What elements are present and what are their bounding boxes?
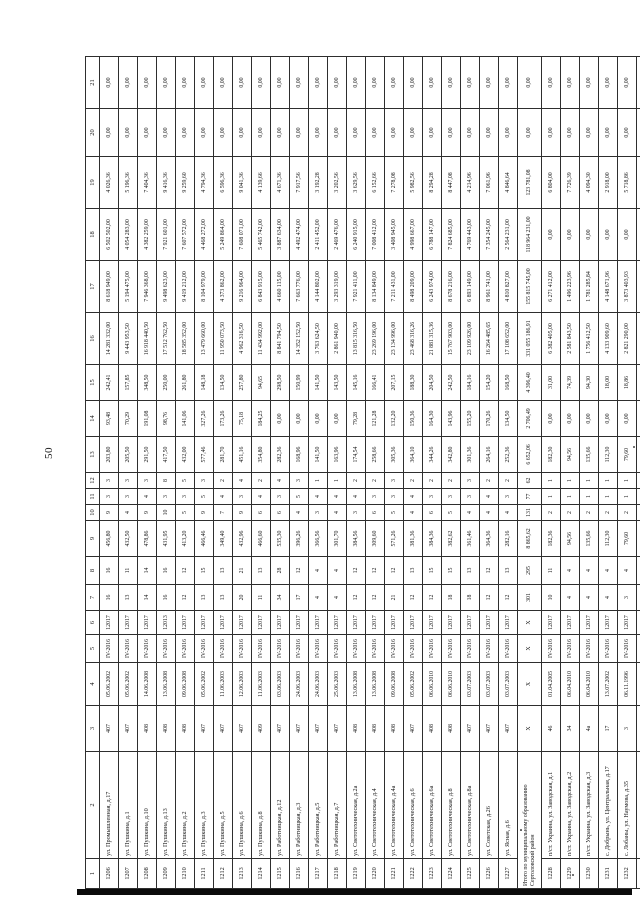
value-cell: 0,00	[561, 401, 580, 437]
value-cell: 16	[100, 585, 119, 611]
value-cell: 12	[366, 585, 385, 611]
value-cell: 1	[309, 473, 328, 489]
address-cell: ул. Пушкина, д.8	[252, 752, 271, 859]
value-cell: 0,00	[561, 209, 580, 261]
value-cell: 14 281 332,00	[100, 313, 119, 365]
value-cell: 12017	[542, 611, 561, 635]
value-cell: 12017	[618, 611, 637, 635]
value-cell: 4	[309, 585, 328, 611]
value-cell: 2	[442, 473, 461, 489]
value-cell: 20	[233, 585, 252, 611]
value-cell: 155,20	[461, 401, 480, 437]
value-cell: 2 417,86	[637, 157, 640, 209]
value-cell: 0,00	[176, 57, 195, 109]
value-cell: 451,16	[233, 437, 252, 473]
value-cell: 13 815 316,50	[347, 313, 366, 365]
value-cell: 6 382 405,00	[542, 313, 561, 365]
value-cell: 0,00	[385, 57, 404, 109]
value-cell: 17 108 652,00	[499, 313, 518, 365]
value-cell: 407	[214, 706, 233, 752]
value-cell: 5	[176, 473, 195, 489]
value-cell: 184,16	[461, 365, 480, 401]
value-cell: 12017	[328, 611, 347, 635]
value-cell: 166,41	[366, 365, 385, 401]
value-cell: 7 921 411,00	[347, 261, 366, 313]
value-cell: 2	[499, 473, 518, 489]
value-cell: 191,08	[138, 401, 157, 437]
value-cell: 5	[385, 505, 404, 521]
value-cell: 1	[618, 473, 637, 489]
value-cell: 4	[233, 473, 252, 489]
value-cell: 205,50	[119, 437, 138, 473]
value-cell: 3	[442, 489, 461, 505]
value-cell: 1	[618, 489, 637, 505]
value-cell: 0,00	[461, 109, 480, 157]
value-cell: 4 148 671,96	[599, 261, 618, 313]
value-cell: 2 469 476,00	[328, 209, 347, 261]
value-cell: 3	[461, 473, 480, 489]
value-cell: 407	[233, 706, 252, 752]
header-row: 123456789101112131415161718192021	[86, 57, 100, 889]
value-cell: 98,76	[157, 401, 176, 437]
value-cell: 141,06	[176, 401, 195, 437]
value-cell: 8	[157, 473, 176, 489]
value-cell: 13 479 660,00	[195, 313, 214, 365]
value-cell: 264,16	[480, 437, 499, 473]
row-number-cell: 1207	[119, 859, 138, 889]
address-cell: ул. Светотехническая, д.6а	[423, 752, 442, 859]
value-cell: 6	[271, 505, 290, 521]
value-cell: 4 214,96	[461, 157, 480, 209]
value-cell: 364,10	[404, 437, 423, 473]
value-cell: 3	[271, 489, 290, 505]
value-cell: 5 194 475,00	[119, 261, 138, 313]
value-cell: 9	[100, 505, 119, 521]
value-cell: IV-2016	[119, 635, 138, 663]
value-cell: 0,00	[618, 401, 637, 437]
value-cell: IV-2016	[637, 635, 640, 663]
value-cell: 252,36	[499, 437, 518, 473]
value-cell: 0,00	[328, 109, 347, 157]
value-cell: 348,50	[138, 365, 157, 401]
value-cell: 0,00	[328, 57, 347, 109]
value-cell: 4а	[580, 706, 599, 752]
value-cell: 4 139,66	[252, 157, 271, 209]
value-cell: 207,15	[385, 365, 404, 401]
value-cell: 13.06.2008	[366, 663, 385, 706]
value-cell: 05.06.2002	[195, 663, 214, 706]
value-cell: 396,26	[290, 521, 309, 557]
value-cell: 0,00	[404, 109, 423, 157]
value-cell: 4	[404, 489, 423, 505]
value-cell: 7 404,36	[138, 157, 157, 209]
table-row: 1206ул. Промышленная, д.1740705.06.2002I…	[100, 57, 119, 889]
value-cell: 03.07.2003	[480, 663, 499, 706]
value-cell: 4	[214, 489, 233, 505]
value-cell: 5	[442, 505, 461, 521]
value-cell: 0,00	[233, 109, 252, 157]
column-header: 19	[86, 157, 100, 209]
value-cell: 12017	[366, 611, 385, 635]
table-row: 1220ул. Светотехническая, д.440813.06.20…	[366, 57, 385, 889]
value-cell: 2 564 231,00	[499, 209, 518, 261]
value-cell: 2	[252, 473, 271, 489]
value-cell: 4	[119, 505, 138, 521]
value-cell: 3	[100, 473, 119, 489]
value-cell: 466,60	[252, 521, 271, 557]
row-number-cell: 1223	[423, 859, 442, 889]
value-cell: 2 581 843,50	[561, 313, 580, 365]
row-number-cell: 1231	[599, 859, 618, 889]
value-cell: 364,36	[480, 521, 499, 557]
value-cell: 305,36	[385, 437, 404, 473]
value-cell: 3 192,28	[309, 157, 328, 209]
value-cell: 1	[599, 489, 618, 505]
value-cell: IV-2016	[480, 635, 499, 663]
value-cell: 12	[480, 585, 499, 611]
value-cell: IV-2016	[328, 635, 347, 663]
value-cell: 1	[561, 489, 580, 505]
value-cell: 15 767 903,00	[442, 313, 461, 365]
value-cell: 0,00	[100, 57, 119, 109]
column-header: 14	[86, 401, 100, 437]
value-cell: 1	[637, 473, 640, 489]
value-cell: 9 498 623,00	[157, 261, 176, 313]
row-number-cell: 1228	[542, 859, 561, 889]
value-cell: 7 921 601,00	[157, 209, 176, 261]
total-value-cell: 0,00	[518, 109, 542, 157]
value-cell: IV-2016	[561, 635, 580, 663]
value-cell: 9 041,36	[233, 157, 252, 209]
value-cell: IV-2016	[309, 635, 328, 663]
value-cell: 12	[499, 585, 518, 611]
value-cell: 7 061,96	[480, 157, 499, 209]
value-cell: 0,00	[252, 109, 271, 157]
value-cell: 21	[233, 557, 252, 585]
value-cell: 12	[347, 585, 366, 611]
value-cell: 150,99	[290, 365, 309, 401]
value-cell: 0,00	[637, 57, 640, 109]
value-cell: 281,70	[214, 437, 233, 473]
value-cell: 327,26	[195, 401, 214, 437]
value-cell: 5	[176, 505, 195, 521]
table-row: 1207ул. Пушкина, д.140705.06.2002IV-2016…	[119, 57, 138, 889]
value-cell: 3	[618, 706, 637, 752]
value-cell: 3	[423, 489, 442, 505]
row-number-cell: 1226	[480, 859, 499, 889]
value-cell: IV-2016	[214, 635, 233, 663]
value-cell: 6 271 412,00	[542, 261, 561, 313]
value-cell: 12017	[290, 611, 309, 635]
value-cell: 407	[195, 706, 214, 752]
value-cell: 12	[290, 557, 309, 585]
value-cell: 0,00	[195, 109, 214, 157]
value-cell: 0,00	[542, 57, 561, 109]
value-cell: 258,66	[366, 437, 385, 473]
value-cell: 0,00	[580, 401, 599, 437]
value-cell: 3 293 319,00	[328, 261, 347, 313]
value-cell: 12	[347, 557, 366, 585]
value-cell: 15	[442, 557, 461, 585]
value-cell: IV-2016	[195, 635, 214, 663]
value-cell: 0,00	[195, 57, 214, 109]
value-cell: 0,00	[404, 57, 423, 109]
value-cell: IV-2016	[580, 635, 599, 663]
value-cell: 7 608 071,00	[233, 209, 252, 261]
row-number-cell: 1217	[309, 859, 328, 889]
value-cell: 4	[309, 489, 328, 505]
total-value-cell: X	[518, 611, 542, 635]
value-cell: 12017	[195, 611, 214, 635]
value-cell: 12	[366, 557, 385, 585]
value-cell: 12017	[480, 611, 499, 635]
value-cell: 154,20	[480, 365, 499, 401]
value-cell: 0,00	[599, 57, 618, 109]
value-cell: 7 946 368,00	[138, 261, 157, 313]
value-cell: 257,80	[233, 365, 252, 401]
value-cell: 11	[542, 557, 561, 585]
value-cell: 21	[385, 585, 404, 611]
value-cell: 3	[499, 489, 518, 505]
value-cell: IV-2016	[618, 635, 637, 663]
value-cell: 0,00	[480, 109, 499, 157]
column-header: 12	[86, 473, 100, 489]
value-cell: 18,86	[618, 365, 637, 401]
scanned-page: 50 123456789101112131415161718192021 120…	[0, 0, 640, 905]
address-cell: п/ст. Украина, ул. Заводская, д.2	[561, 752, 580, 859]
value-cell: 0,00	[157, 57, 176, 109]
row-number-cell: 1206	[100, 859, 119, 889]
value-cell: 0,00	[233, 57, 252, 109]
value-cell: 2	[542, 505, 561, 521]
value-cell: 10	[157, 505, 176, 521]
value-cell: 75,18	[233, 401, 252, 437]
value-cell: 23 109 926,00	[461, 313, 480, 365]
scan-speck	[633, 446, 635, 448]
value-cell: 8 961 741,00	[480, 261, 499, 313]
rotated-table-container: 123456789101112131415161718192021 1206ул…	[85, 57, 627, 889]
value-cell: 203,80	[100, 437, 119, 473]
value-cell: 9 419 212,00	[176, 261, 195, 313]
value-cell: 407	[480, 706, 499, 752]
value-cell: 12017	[580, 611, 599, 635]
value-cell: 17,86	[637, 365, 640, 401]
value-cell: 132,20	[385, 401, 404, 437]
value-cell: 0,00	[271, 57, 290, 109]
value-cell: 17	[290, 585, 309, 611]
value-cell: 5 465 742,00	[252, 209, 271, 261]
value-cell: 150,36	[404, 401, 423, 437]
value-cell: 7	[214, 505, 233, 521]
value-cell: 2	[637, 505, 640, 521]
row-number-cell: 1232	[618, 859, 637, 889]
value-cell: 6 788 147,00	[423, 209, 442, 261]
row-number-cell: 1210	[176, 859, 195, 889]
value-cell: 7 726,39	[561, 157, 580, 209]
value-cell: 535,30	[271, 521, 290, 557]
value-cell: 4	[480, 505, 499, 521]
value-cell: 14.06.2008	[138, 663, 157, 706]
total-value-cell: 62	[518, 473, 542, 489]
value-cell: 12017	[176, 611, 195, 635]
value-cell: 12017	[214, 611, 233, 635]
table-body: 1206ул. Промышленная, д.1740705.06.2002I…	[100, 57, 640, 889]
value-cell: 4	[499, 505, 518, 521]
address-cell: ул. Светотехническая, д.8а	[461, 752, 480, 859]
value-cell: 0,00	[542, 401, 561, 437]
value-cell: IV-2016	[442, 635, 461, 663]
value-cell: 0,00	[423, 109, 442, 157]
value-cell: 3 887 634,00	[271, 209, 290, 261]
row-number-cell: 1221	[385, 859, 404, 889]
table-row: 1228п/ст. Украина, ул. Заводская, д.1460…	[542, 57, 561, 889]
value-cell: 25.06.2003	[328, 663, 347, 706]
column-header: 21	[86, 57, 100, 109]
value-cell: 1	[637, 489, 640, 505]
value-cell: 0,00	[637, 109, 640, 157]
table-row: 1226ул. Советская, д.2640703.07.2003IV-2…	[480, 57, 499, 889]
value-cell: 4	[328, 489, 347, 505]
value-cell: 0,00	[309, 57, 328, 109]
value-cell: 4 810 827,00	[499, 261, 518, 313]
value-cell: 4 382 259,00	[138, 209, 157, 261]
value-cell: 11	[252, 585, 271, 611]
value-cell: 06.06.2010	[442, 663, 461, 706]
table-row: 1223ул. Светотехническая, д.6а40806.06.2…	[423, 57, 442, 889]
address-cell: ул. Советская, д.26	[480, 752, 499, 859]
value-cell: 4	[561, 585, 580, 611]
value-cell: 3 202,56	[328, 157, 347, 209]
value-cell: 79,60	[618, 521, 637, 557]
value-cell: 407	[461, 706, 480, 752]
value-cell: 2	[480, 473, 499, 489]
value-cell: 4	[599, 557, 618, 585]
value-cell: 408	[366, 706, 385, 752]
column-header: 2	[86, 752, 100, 859]
value-cell: 3	[138, 473, 157, 489]
value-cell: 8 104 979,00	[195, 261, 214, 313]
value-cell: 4 671,36	[271, 157, 290, 209]
value-cell: 4 133 909,60	[599, 313, 618, 365]
value-cell: 03.07.2003	[499, 663, 518, 706]
value-cell: 366,56	[309, 521, 328, 557]
value-cell: 0,00	[580, 57, 599, 109]
value-cell: 282,16	[499, 521, 518, 557]
row-number-cell: 1224	[442, 859, 461, 889]
value-cell: 432,96	[233, 521, 252, 557]
value-cell: 2 821 290,00	[618, 313, 637, 365]
table-row: 1229п/ст. Украина, ул. Заводская, д.2340…	[561, 57, 580, 889]
value-cell: 4 373 862,00	[214, 261, 233, 313]
value-cell: 18 585 352,00	[176, 313, 195, 365]
value-cell: 3	[233, 489, 252, 505]
value-cell: 13	[214, 557, 233, 585]
value-cell: 6 152,66	[366, 157, 385, 209]
value-cell: 9	[233, 505, 252, 521]
value-cell: 7 607 572,00	[176, 209, 195, 261]
table-row: 1230п/ст. Украина, ул. Заводская, д.34а0…	[580, 57, 599, 889]
value-cell: 4 492 474,00	[290, 209, 309, 261]
value-cell: 143,96	[442, 401, 461, 437]
value-cell: 141,50	[309, 365, 328, 401]
total-value-cell: 4 396,40	[518, 365, 542, 401]
column-header: 9	[86, 521, 100, 557]
value-cell: 70,29	[119, 401, 138, 437]
value-cell: 4	[461, 505, 480, 521]
value-cell: 4 846,64	[499, 157, 518, 209]
value-cell: 3	[385, 473, 404, 489]
row-number-cell: 1218	[328, 859, 347, 889]
value-cell: IV-2016	[599, 635, 618, 663]
value-cell: IV-2016	[385, 635, 404, 663]
table-row: 1212ул. Пушкина, д.540711.06.2003IV-2016…	[214, 57, 233, 889]
value-cell: 456,80	[100, 521, 119, 557]
value-cell: 407	[290, 706, 309, 752]
value-cell: 3	[195, 473, 214, 489]
value-cell: 1 781 285,84	[580, 261, 599, 313]
value-cell: 4 998 667,00	[404, 209, 423, 261]
address-cell: ул. Светотехническая, д.4а	[385, 752, 404, 859]
value-cell: 4б	[637, 706, 640, 752]
value-cell: 23 269 196,00	[366, 313, 385, 365]
value-cell: 4 026,36	[100, 157, 119, 209]
value-cell: 145,16	[347, 365, 366, 401]
address-cell: ул. Пушкина, д.10	[138, 752, 157, 859]
value-cell: 15	[423, 557, 442, 585]
value-cell: 12017	[100, 611, 119, 635]
value-cell: 0,00	[157, 109, 176, 157]
value-cell: 0,00	[599, 401, 618, 437]
value-cell: 0,00	[599, 209, 618, 261]
value-cell: 12	[404, 585, 423, 611]
value-cell: 09.06.2008	[176, 663, 195, 706]
row-number-cell: 1212	[214, 859, 233, 889]
value-cell: 0,00	[442, 57, 461, 109]
value-cell: 4	[271, 473, 290, 489]
value-cell: 1	[599, 473, 618, 489]
value-cell: 0,00	[290, 57, 309, 109]
value-cell: 0,00	[347, 57, 366, 109]
table-row: 1211ул. Пушкина, д.340705.06.2002IV-2016…	[195, 57, 214, 889]
value-cell: 164,30	[423, 401, 442, 437]
value-cell: 7 917,56	[290, 157, 309, 209]
address-cell: с. Поляна, ул. Нёман, д.15	[637, 752, 640, 859]
value-cell: 342,80	[442, 437, 461, 473]
value-cell: 112,30	[599, 437, 618, 473]
value-cell: 13	[252, 557, 271, 585]
value-cell: 9 259,60	[176, 157, 195, 209]
value-cell: 0,00	[542, 209, 561, 261]
address-cell: ул. Работницкая, д.12	[271, 752, 290, 859]
total-row: Итого по муниципальному образованию Серт…	[518, 57, 542, 889]
value-cell: 431,95	[157, 521, 176, 557]
value-cell: 242,41	[100, 365, 119, 401]
value-cell: 4	[599, 585, 618, 611]
address-cell: ул. Пушкина, д.6	[233, 752, 252, 859]
value-cell: IV-2016	[366, 635, 385, 663]
total-value-cell: 301	[518, 585, 542, 611]
value-cell: 6 240 915,00	[347, 209, 366, 261]
value-cell: 407	[271, 706, 290, 752]
value-cell: 5	[290, 489, 309, 505]
value-cell: 12017	[599, 611, 618, 635]
value-cell: 2 582 287,00	[637, 261, 640, 313]
value-cell: 10	[542, 585, 561, 611]
value-cell: 309,60	[366, 521, 385, 557]
value-cell: IV-2016	[233, 635, 252, 663]
value-cell: IV-2016	[347, 635, 366, 663]
value-cell: 4	[404, 505, 423, 521]
